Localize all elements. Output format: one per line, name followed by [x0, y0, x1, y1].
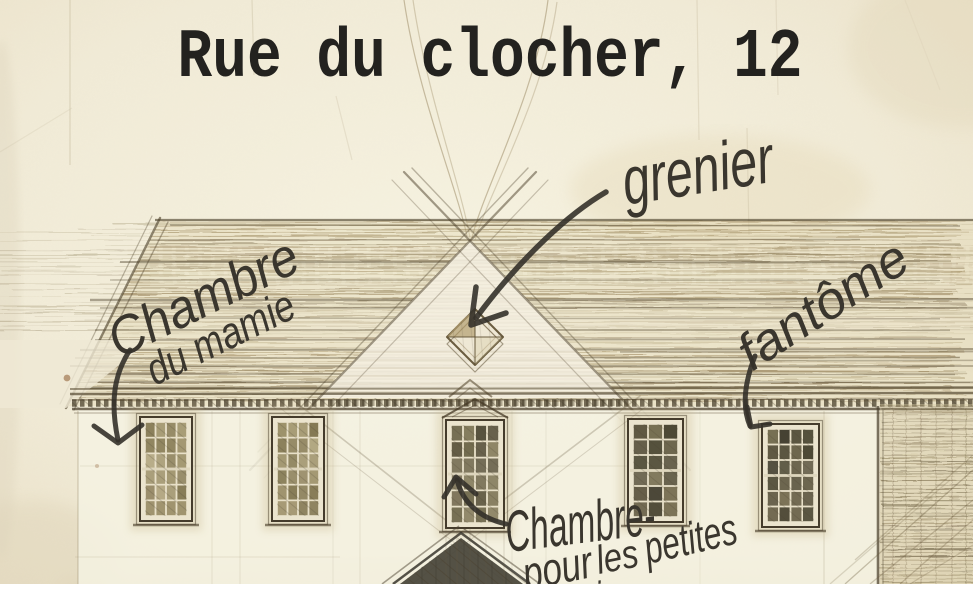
svg-text:Rue du clocher, 12: Rue du clocher, 12 [178, 19, 803, 98]
